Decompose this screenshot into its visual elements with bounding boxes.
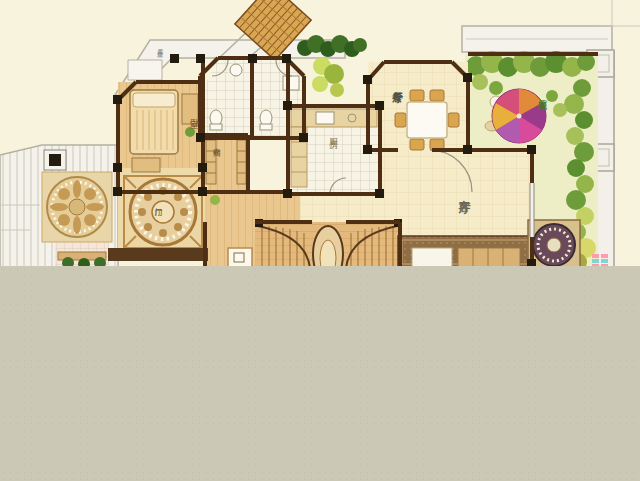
label-kitchen: 厨房 [328, 131, 337, 133]
hedge-plants [297, 35, 367, 97]
terrace-medallion-left [42, 172, 112, 242]
label-roof-annotation: 露台上空 [157, 44, 163, 48]
parasol [492, 89, 546, 143]
label-terrace-garden: 露台花园 [537, 92, 546, 96]
label-dining-room: 餐厅 [391, 82, 403, 86]
gray-masked-region [0, 266, 640, 481]
label-living-room: 客厅 [458, 190, 471, 196]
foyer-medallion [108, 176, 208, 261]
label-bedroom: 卧室 [189, 111, 198, 113]
label-foyer: 门厅 [153, 201, 161, 203]
label-cloakroom: 衣帽间 [212, 142, 219, 145]
floorplan-image: 餐厅 客厅 厨房 卧室 衣帽间 门厅 露台花园 露台上空 [0, 0, 640, 481]
